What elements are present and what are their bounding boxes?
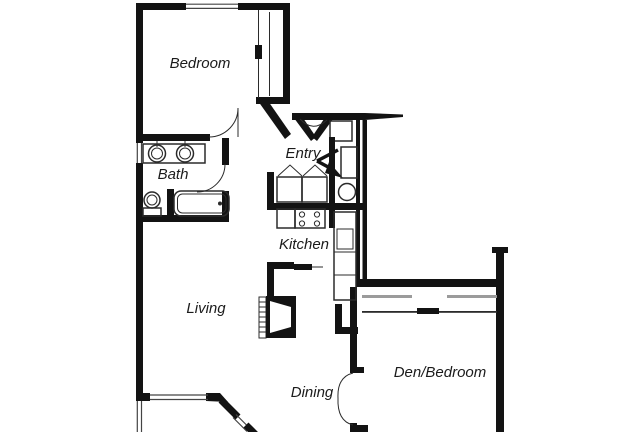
deck-edge xyxy=(137,401,141,432)
wall-top-right xyxy=(238,3,290,10)
wall-bedroom-right xyxy=(283,3,290,104)
wall-kitchen-L-vert xyxy=(267,262,274,298)
doors xyxy=(197,10,497,425)
wall-den-door-top-stub xyxy=(350,367,364,373)
wall-den-right xyxy=(496,252,504,432)
range-stove xyxy=(295,209,325,228)
den-double-doors xyxy=(338,373,353,425)
bedroom-closet-sliding-door xyxy=(255,10,270,98)
water-heater xyxy=(339,184,356,201)
room-label-living: Living xyxy=(186,300,226,317)
coat-closet-tick xyxy=(329,137,335,143)
laundry-bifold-doors xyxy=(278,165,327,176)
floor-plan-canvas: Bedroom Bath Entry Kitchen Living Dining… xyxy=(0,0,640,432)
washer-dryer xyxy=(277,177,327,202)
wall-nook-bottom xyxy=(329,203,365,210)
room-label-entry: Entry xyxy=(285,145,322,162)
kitchen-sink-counter xyxy=(334,212,356,300)
den-closet-sliding-doors xyxy=(362,295,497,314)
bathtub xyxy=(174,191,229,216)
room-label-dining: Dining xyxy=(291,384,334,401)
wall-top-left xyxy=(136,3,186,10)
wall-diagonal-jog xyxy=(258,98,291,139)
bedroom-door xyxy=(209,108,238,137)
wall-dining-bottom-stub xyxy=(350,425,368,432)
wall-den-top xyxy=(358,279,498,287)
toilet xyxy=(143,192,161,216)
room-label-bedroom: Bedroom xyxy=(170,55,231,72)
bay-window xyxy=(150,395,257,432)
fireplace-hearth-hatch xyxy=(259,297,266,338)
entry-direction-arrow xyxy=(317,150,343,178)
room-label-bath: Bath xyxy=(158,166,189,183)
kitchen-fixtures xyxy=(277,209,356,300)
wall-bay-left-stub xyxy=(136,393,150,401)
wall-party-extension xyxy=(365,113,403,120)
room-label-kitchen: Kitchen xyxy=(279,236,329,253)
wall-tub-divider xyxy=(167,189,174,216)
bath-door xyxy=(197,164,225,192)
floor-plan: Bedroom Bath Entry Kitchen Living Dining… xyxy=(0,0,640,432)
bedroom-window xyxy=(186,2,238,11)
wall-den-right-cap xyxy=(492,247,508,253)
wall-bath-right-upper xyxy=(222,138,229,165)
utility-cabinet xyxy=(341,147,357,178)
fireplace xyxy=(259,296,296,338)
wall-left xyxy=(136,3,143,401)
room-label-den-bedroom: Den/Bedroom xyxy=(394,364,487,381)
wall-bath-top xyxy=(143,134,210,141)
counter-left-of-stove xyxy=(277,209,295,228)
vanity-double-sinks xyxy=(143,141,205,163)
pass-through-counter xyxy=(294,264,323,270)
bath-window xyxy=(136,143,143,163)
